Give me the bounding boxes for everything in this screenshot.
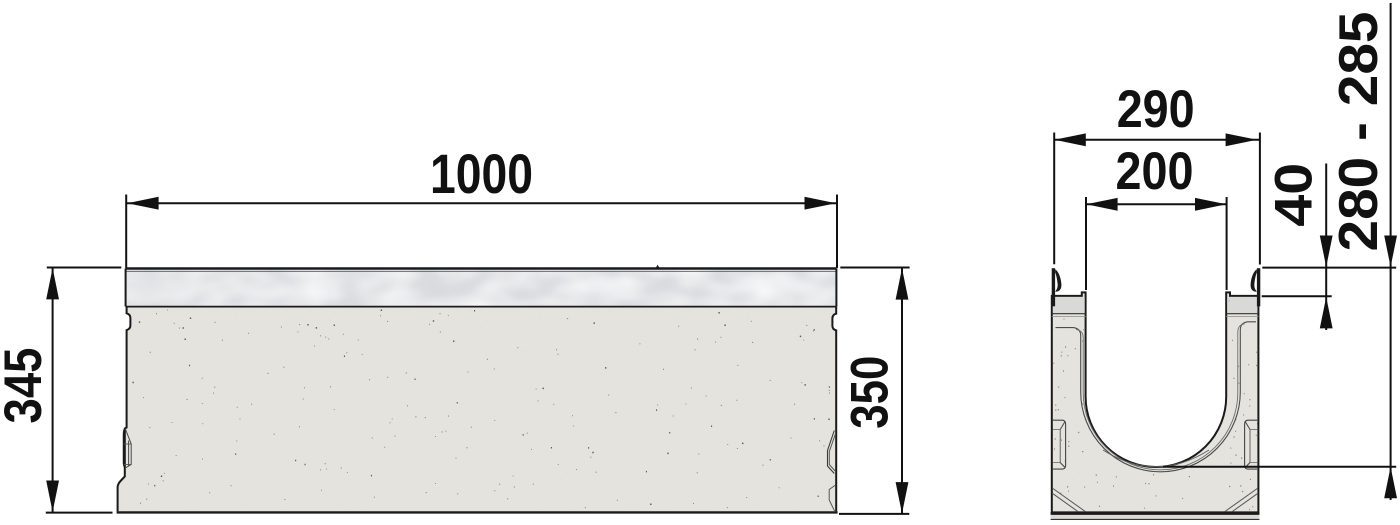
svg-text:40: 40: [1265, 163, 1324, 227]
svg-text:1000: 1000: [430, 142, 533, 205]
svg-text:350: 350: [840, 356, 899, 429]
svg-text:290: 290: [1117, 80, 1195, 139]
svg-text:345: 345: [0, 348, 53, 424]
svg-text:200: 200: [1116, 142, 1194, 201]
svg-text:280 - 285: 280 - 285: [1327, 12, 1389, 252]
